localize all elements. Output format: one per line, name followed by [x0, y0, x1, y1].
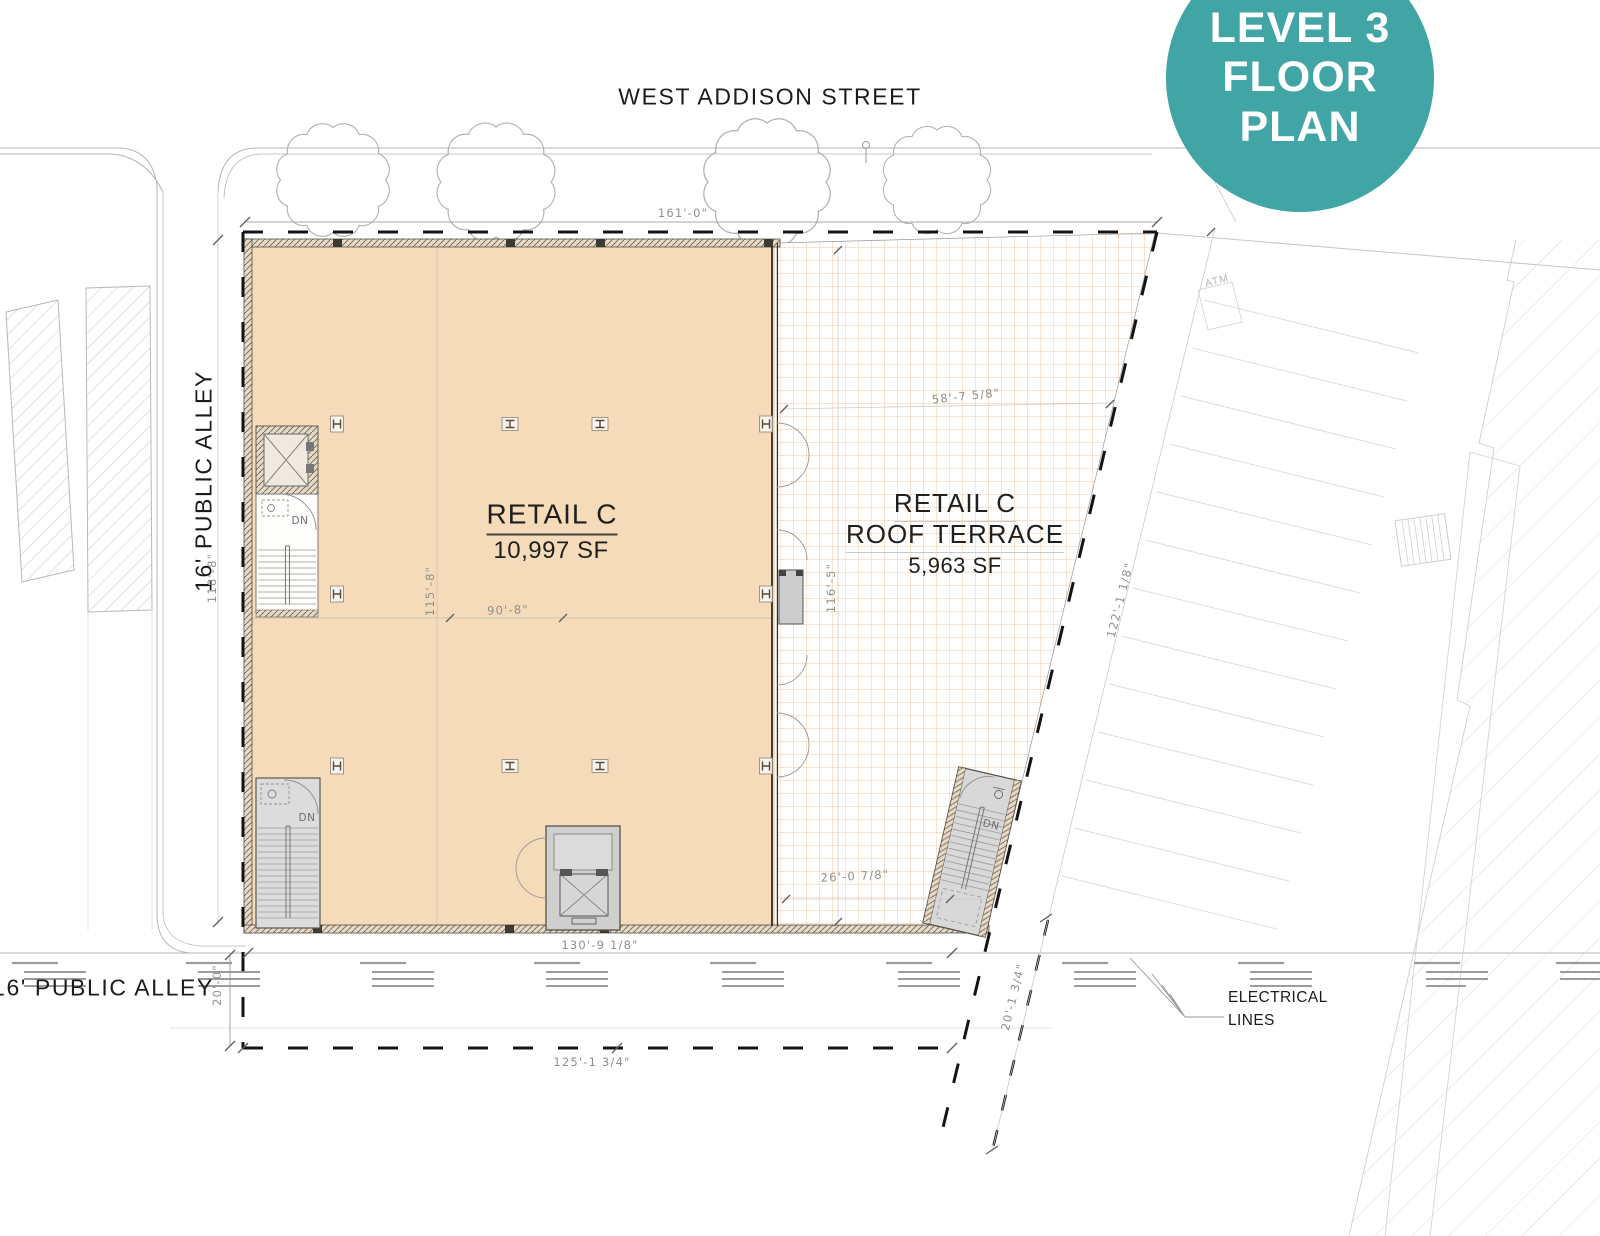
stair-dn-label-southwest: DN [299, 812, 316, 824]
electrical-lines-label-2: LINES [1228, 1012, 1275, 1030]
dim-street-frontage: 161'-0" [658, 206, 708, 220]
stair-dn-label-northwest: DN [292, 515, 309, 527]
dim-retail-depth: 115'-8" [423, 566, 437, 616]
terrace-label-line1: RETAIL C [894, 488, 1016, 522]
dim-retail-width: 90'-8" [487, 602, 529, 617]
dim-alley-width: 20'-0" [210, 964, 224, 1006]
level-badge-line2: FLOOR PLAN [1166, 53, 1434, 152]
alley-markings [12, 963, 1600, 986]
level-badge-line1: LEVEL 3 [1210, 4, 1391, 53]
street-trees [277, 119, 991, 245]
retail-space-label: RETAIL C [487, 499, 618, 536]
terrace-area: 5,963 SF [908, 553, 1001, 579]
street-name-bottom: 16' PUBLIC ALLEY [0, 975, 214, 1002]
retail-space-area: 10,997 SF [493, 537, 608, 565]
dim-south-building: 130'-9 1/8" [561, 938, 638, 952]
street-name-top: WEST ADDISON STREET [618, 84, 921, 111]
electrical-lines-label-1: ELECTRICAL [1228, 989, 1328, 1007]
northwest-core [256, 426, 318, 617]
southwest-stair-core [256, 778, 320, 928]
terrace-wall-panel [779, 570, 803, 624]
neighbor-stair-icon [1395, 514, 1451, 567]
atm-pad [1198, 282, 1242, 330]
electrical-leader [1130, 958, 1224, 1017]
light-pole-icon [863, 142, 870, 164]
terrace-label-line2: ROOF TERRACE [846, 519, 1064, 553]
floor-plan-page: WEST ADDISON STREET 16' PUBLIC ALLEY 16'… [0, 0, 1600, 1236]
east-neighbor-building [1349, 240, 1600, 1236]
west-neighbor-buildings [6, 286, 152, 930]
dim-south-property: 125'-1 3/4" [553, 1055, 630, 1069]
dim-terrace-east: 116'-5" [824, 563, 838, 613]
dim-west-side: 118'-8" [205, 553, 219, 603]
